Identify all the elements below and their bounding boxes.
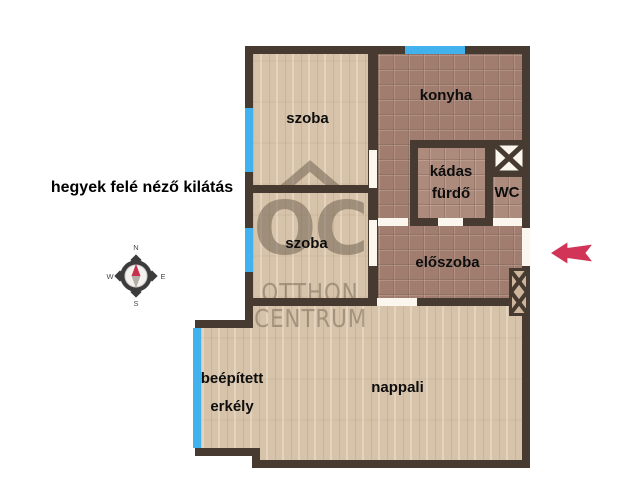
- shaft-x-box-icon: [490, 140, 528, 176]
- wall-szoba-divider: [245, 185, 378, 193]
- label-szoba-2: szoba: [260, 234, 353, 253]
- window-szoba-1: [245, 108, 253, 172]
- compass-w: W: [106, 272, 114, 281]
- label-szoba-1: szoba: [260, 109, 355, 128]
- window-szoba-2: [245, 228, 253, 272]
- wall-bathroom-top: [410, 140, 493, 148]
- label-kadas-furdo: kádas fürdő: [408, 161, 494, 205]
- label-nappali: nappali: [350, 378, 445, 397]
- door-kitchen-hall: [378, 218, 408, 226]
- label-erkely-line1: beépített: [201, 370, 264, 387]
- compass-s: S: [133, 299, 138, 306]
- door-entrance: [522, 228, 530, 266]
- label-beepitett-erkely: beépített erkély: [186, 365, 278, 421]
- label-eloszoba: előszoba: [400, 253, 495, 272]
- label-wc: WC: [490, 183, 524, 202]
- floor-plan-canvas: OC OTTHON CENTRUM szoba szoba konyha: [0, 0, 620, 500]
- door-szoba-1: [369, 150, 377, 188]
- wall-top: [245, 46, 530, 54]
- compass-n: N: [133, 243, 138, 252]
- wall-balcony-top: [195, 320, 253, 328]
- door-wc: [493, 218, 522, 226]
- compass-e: E: [160, 272, 165, 281]
- label-kadas-furdo-line2: fürdő: [432, 185, 470, 202]
- entrance-arrow-icon: [551, 242, 592, 264]
- door-szoba-2: [369, 220, 377, 266]
- wall-bottom: [252, 460, 530, 468]
- door-bathroom: [438, 218, 463, 226]
- window-kitchen: [405, 46, 465, 54]
- shaft-narrow-x-icon: [509, 268, 529, 316]
- view-note: hegyek felé néző kilátás: [30, 179, 254, 197]
- label-kadas-furdo-line1: kádas: [430, 163, 473, 180]
- label-konyha: konyha: [400, 86, 492, 105]
- compass-icon: N W E S: [106, 238, 166, 306]
- wall-balcony-step: [252, 448, 260, 468]
- label-erkely-line2: erkély: [210, 398, 253, 415]
- wall-balcony-bottom: [195, 448, 260, 456]
- door-hall-living: [377, 298, 417, 306]
